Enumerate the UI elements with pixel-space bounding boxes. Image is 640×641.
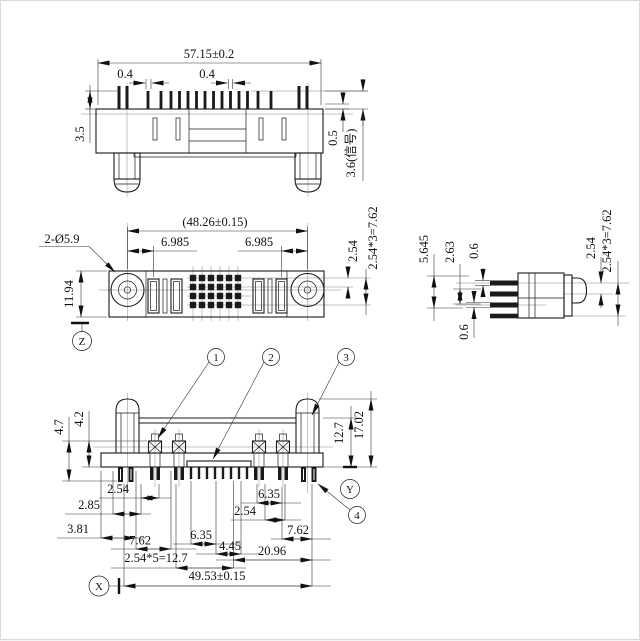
side-view: 5.645 2.63 0.6 0.6 2.54 2.54*3=7.62: [417, 209, 629, 339]
signal-contact-grid: [190, 275, 241, 308]
dim-front-pitch: 2.54: [346, 239, 360, 262]
dim-bottom-p2: 2.85: [78, 498, 100, 512]
callout-4: 4: [318, 484, 366, 524]
dim-bottom-p1: 2.54: [107, 482, 130, 496]
dim-top-pin-width-left: 0.4: [117, 67, 133, 81]
dim-front-holes: 2-Ø5.9: [44, 232, 79, 246]
dim-side-pin-thickness-top: 0.6: [467, 243, 481, 259]
dim-bottom-p10: 7.62: [287, 523, 309, 537]
dim-bottom-p7: 2.54*5=12.7: [124, 551, 187, 565]
dim-bottom-total-height: 17.02: [352, 411, 366, 439]
callout-2-label: 2: [268, 352, 274, 364]
datum-y-label: Y: [346, 484, 354, 496]
bottom-view: 1 2 3 4 4.7 4.2 12.7: [52, 349, 377, 597]
dim-bottom-p4: 6.35: [190, 528, 212, 542]
datum-z-label: Z: [79, 336, 86, 348]
dim-front-span: (48.26±0.15): [182, 215, 247, 229]
dim-side-pitch: 2.54: [584, 236, 598, 259]
dim-bottom-p3: 3.81: [67, 522, 89, 536]
dim-top-gap: 0.5: [326, 130, 340, 146]
dim-top-pin-width-center: 0.4: [199, 67, 215, 81]
top-view: 57.15±0.2 0.4 0.4 3.5 0.5 3.6(信号): [73, 47, 368, 197]
dim-front-offset-right: 6.985: [245, 235, 273, 249]
dim-side-pin-thickness-bottom: 0.6: [457, 324, 471, 340]
dim-bottom-p11: 20.96: [258, 544, 286, 558]
dim-bottom-terminal-length: 4.2: [72, 411, 86, 427]
dim-top-signal-length: 3.6(信号): [344, 129, 358, 178]
callout-1: 1: [158, 349, 225, 439]
dim-bottom-p9: 2.54: [234, 504, 257, 518]
dim-bottom-p5: 7.62: [129, 534, 151, 548]
callout-2: 2: [213, 349, 280, 460]
connector-drawing: 57.15±0.2 0.4 0.4 3.5 0.5 3.6(信号): [1, 1, 640, 641]
dim-bottom-overall: 49.53±0.15: [189, 569, 246, 583]
dim-side-total: 5.645: [417, 235, 431, 263]
dim-bottom-p8: 6.35: [258, 487, 280, 501]
dim-bottom-body-height: 12.7: [332, 422, 346, 444]
datum-x-label: X: [95, 581, 103, 593]
dim-front-offset-left: 6.985: [161, 235, 189, 249]
front-view: (48.26±0.15) 6.985 6.985 2.54 2.54*3=7.6…: [39, 206, 380, 350]
dim-side-mid: 2.63: [443, 241, 457, 263]
dim-bottom-peg-length: 4.7: [52, 419, 66, 435]
dim-top-pin-height: 3.5: [73, 126, 87, 142]
dim-front-row-span: 2.54*3=7.62: [366, 206, 380, 269]
callout-1-label: 1: [213, 352, 219, 364]
callout-3-label: 3: [343, 352, 349, 364]
dim-front-height: 11.94: [62, 279, 76, 307]
drawing-sheet: 57.15±0.2 0.4 0.4 3.5 0.5 3.6(信号): [0, 0, 640, 640]
dim-bottom-p6: 4.45: [219, 539, 241, 553]
callout-4-label: 4: [354, 510, 360, 522]
dim-side-row-span: 2.54*3=7.62: [600, 209, 614, 272]
dim-top-overall: 57.15±0.2: [184, 47, 235, 61]
